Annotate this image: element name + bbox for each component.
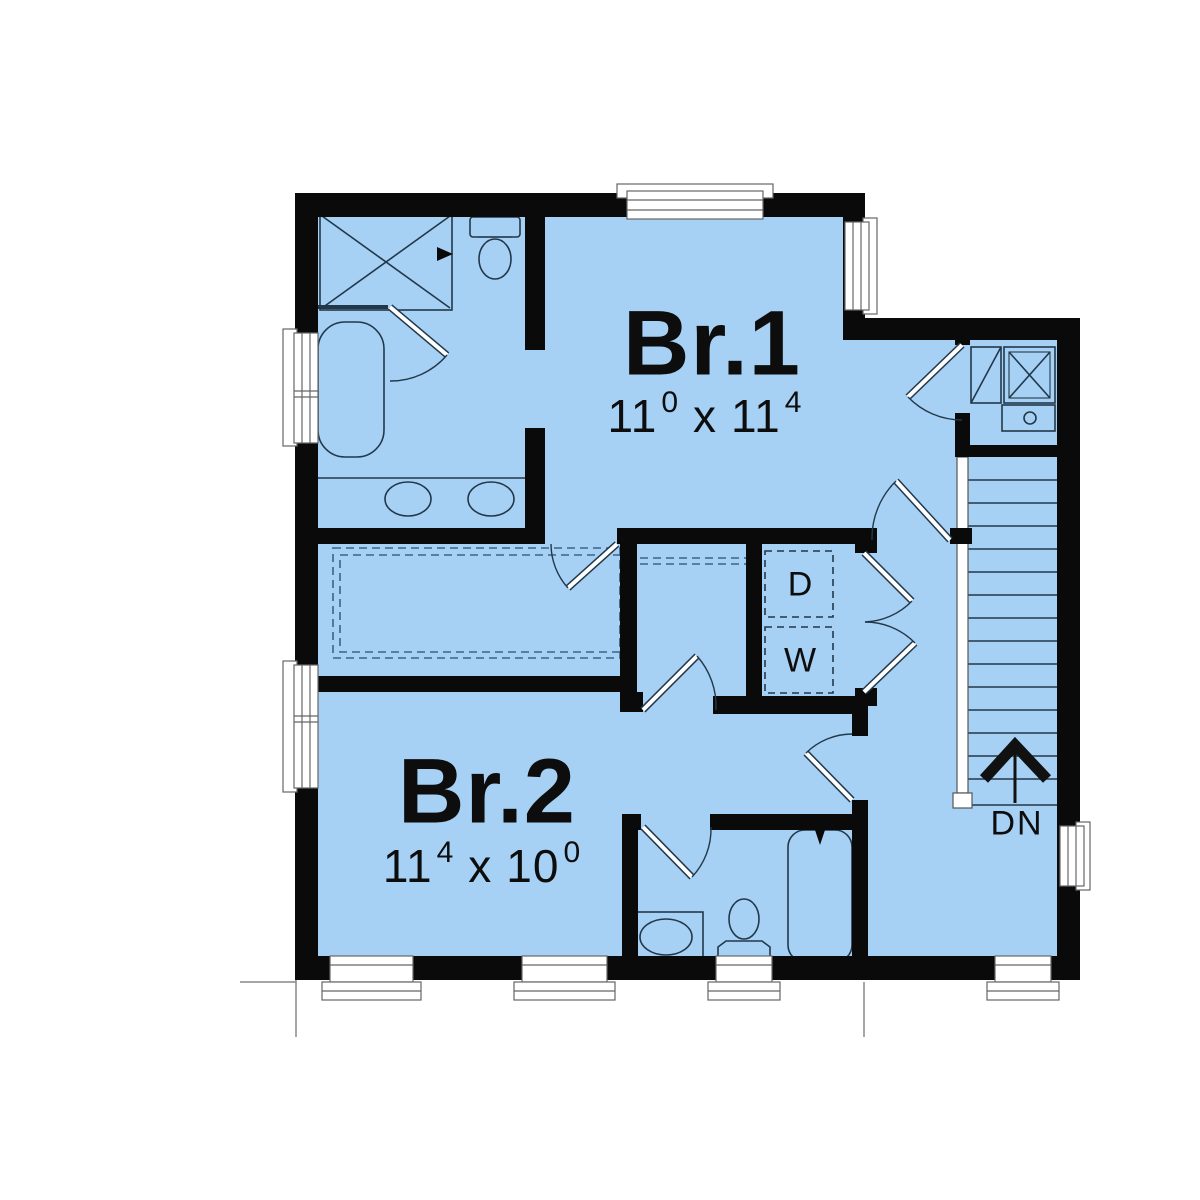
wall-halldoor-stub-top	[852, 714, 868, 736]
stairs-down-label: DN	[990, 805, 1043, 844]
window-br2-bottom-1	[322, 956, 421, 1000]
window-br1-right	[845, 218, 877, 314]
wall-stair-top	[955, 445, 1067, 457]
wall-bath2-west	[622, 814, 638, 967]
wall-bath1-east-lower	[525, 428, 545, 544]
wall-laundry-west	[746, 544, 762, 706]
dim-value: 10	[506, 840, 559, 892]
wall-bath1-east-upper	[525, 205, 545, 350]
room-dim-br1: 110x114	[608, 389, 803, 443]
window-hall-right	[1060, 822, 1090, 890]
window-br2-bottom-2	[514, 956, 615, 1000]
window-hall-bottom	[987, 956, 1059, 1000]
dim-sup: 0	[661, 386, 679, 419]
wall-closet-east	[620, 528, 637, 692]
dim-value: 11	[608, 390, 658, 442]
dim-sep: x	[468, 840, 492, 892]
window-br1-top	[617, 184, 773, 219]
dim-value: 11	[731, 390, 781, 442]
wall-bath2-top	[710, 814, 868, 830]
washer-label: W	[784, 642, 816, 681]
wall-br1-bottom	[617, 528, 877, 544]
wall-outer-left	[295, 193, 318, 980]
wall-outer-top	[295, 193, 865, 217]
dim-value: 11	[383, 840, 433, 892]
wall-br2-door-stub	[620, 692, 643, 712]
window-br2-left	[283, 661, 318, 792]
wall-closet-bottom	[295, 676, 637, 692]
wall-mech-stub-top	[955, 333, 970, 345]
room-dim-br2: 114x100	[383, 839, 581, 893]
room-label-br1: Br.1	[623, 292, 801, 397]
floor-plan-canvas: Br.1 110x114 Br.2 114x100 D W DN	[0, 0, 1200, 1200]
wall-laundry-bottom	[713, 696, 868, 714]
wall-bath1-bottom	[318, 528, 545, 544]
dryer-label: D	[788, 566, 813, 605]
wall-br1-door-stub	[950, 528, 972, 544]
window-bath1-left	[283, 329, 318, 446]
newel-post	[953, 793, 972, 808]
dim-sup: 4	[437, 836, 455, 869]
room-label-br2: Br.2	[398, 740, 576, 845]
dim-sep: x	[693, 390, 717, 442]
dim-sup: 4	[785, 386, 803, 419]
floor-plan-drawing	[0, 0, 1200, 1200]
dim-sup: 0	[563, 836, 581, 869]
wall-bifold-stub-top	[855, 533, 877, 553]
wall-bath2-east	[852, 814, 868, 967]
window-bath2-bottom	[708, 956, 780, 1000]
